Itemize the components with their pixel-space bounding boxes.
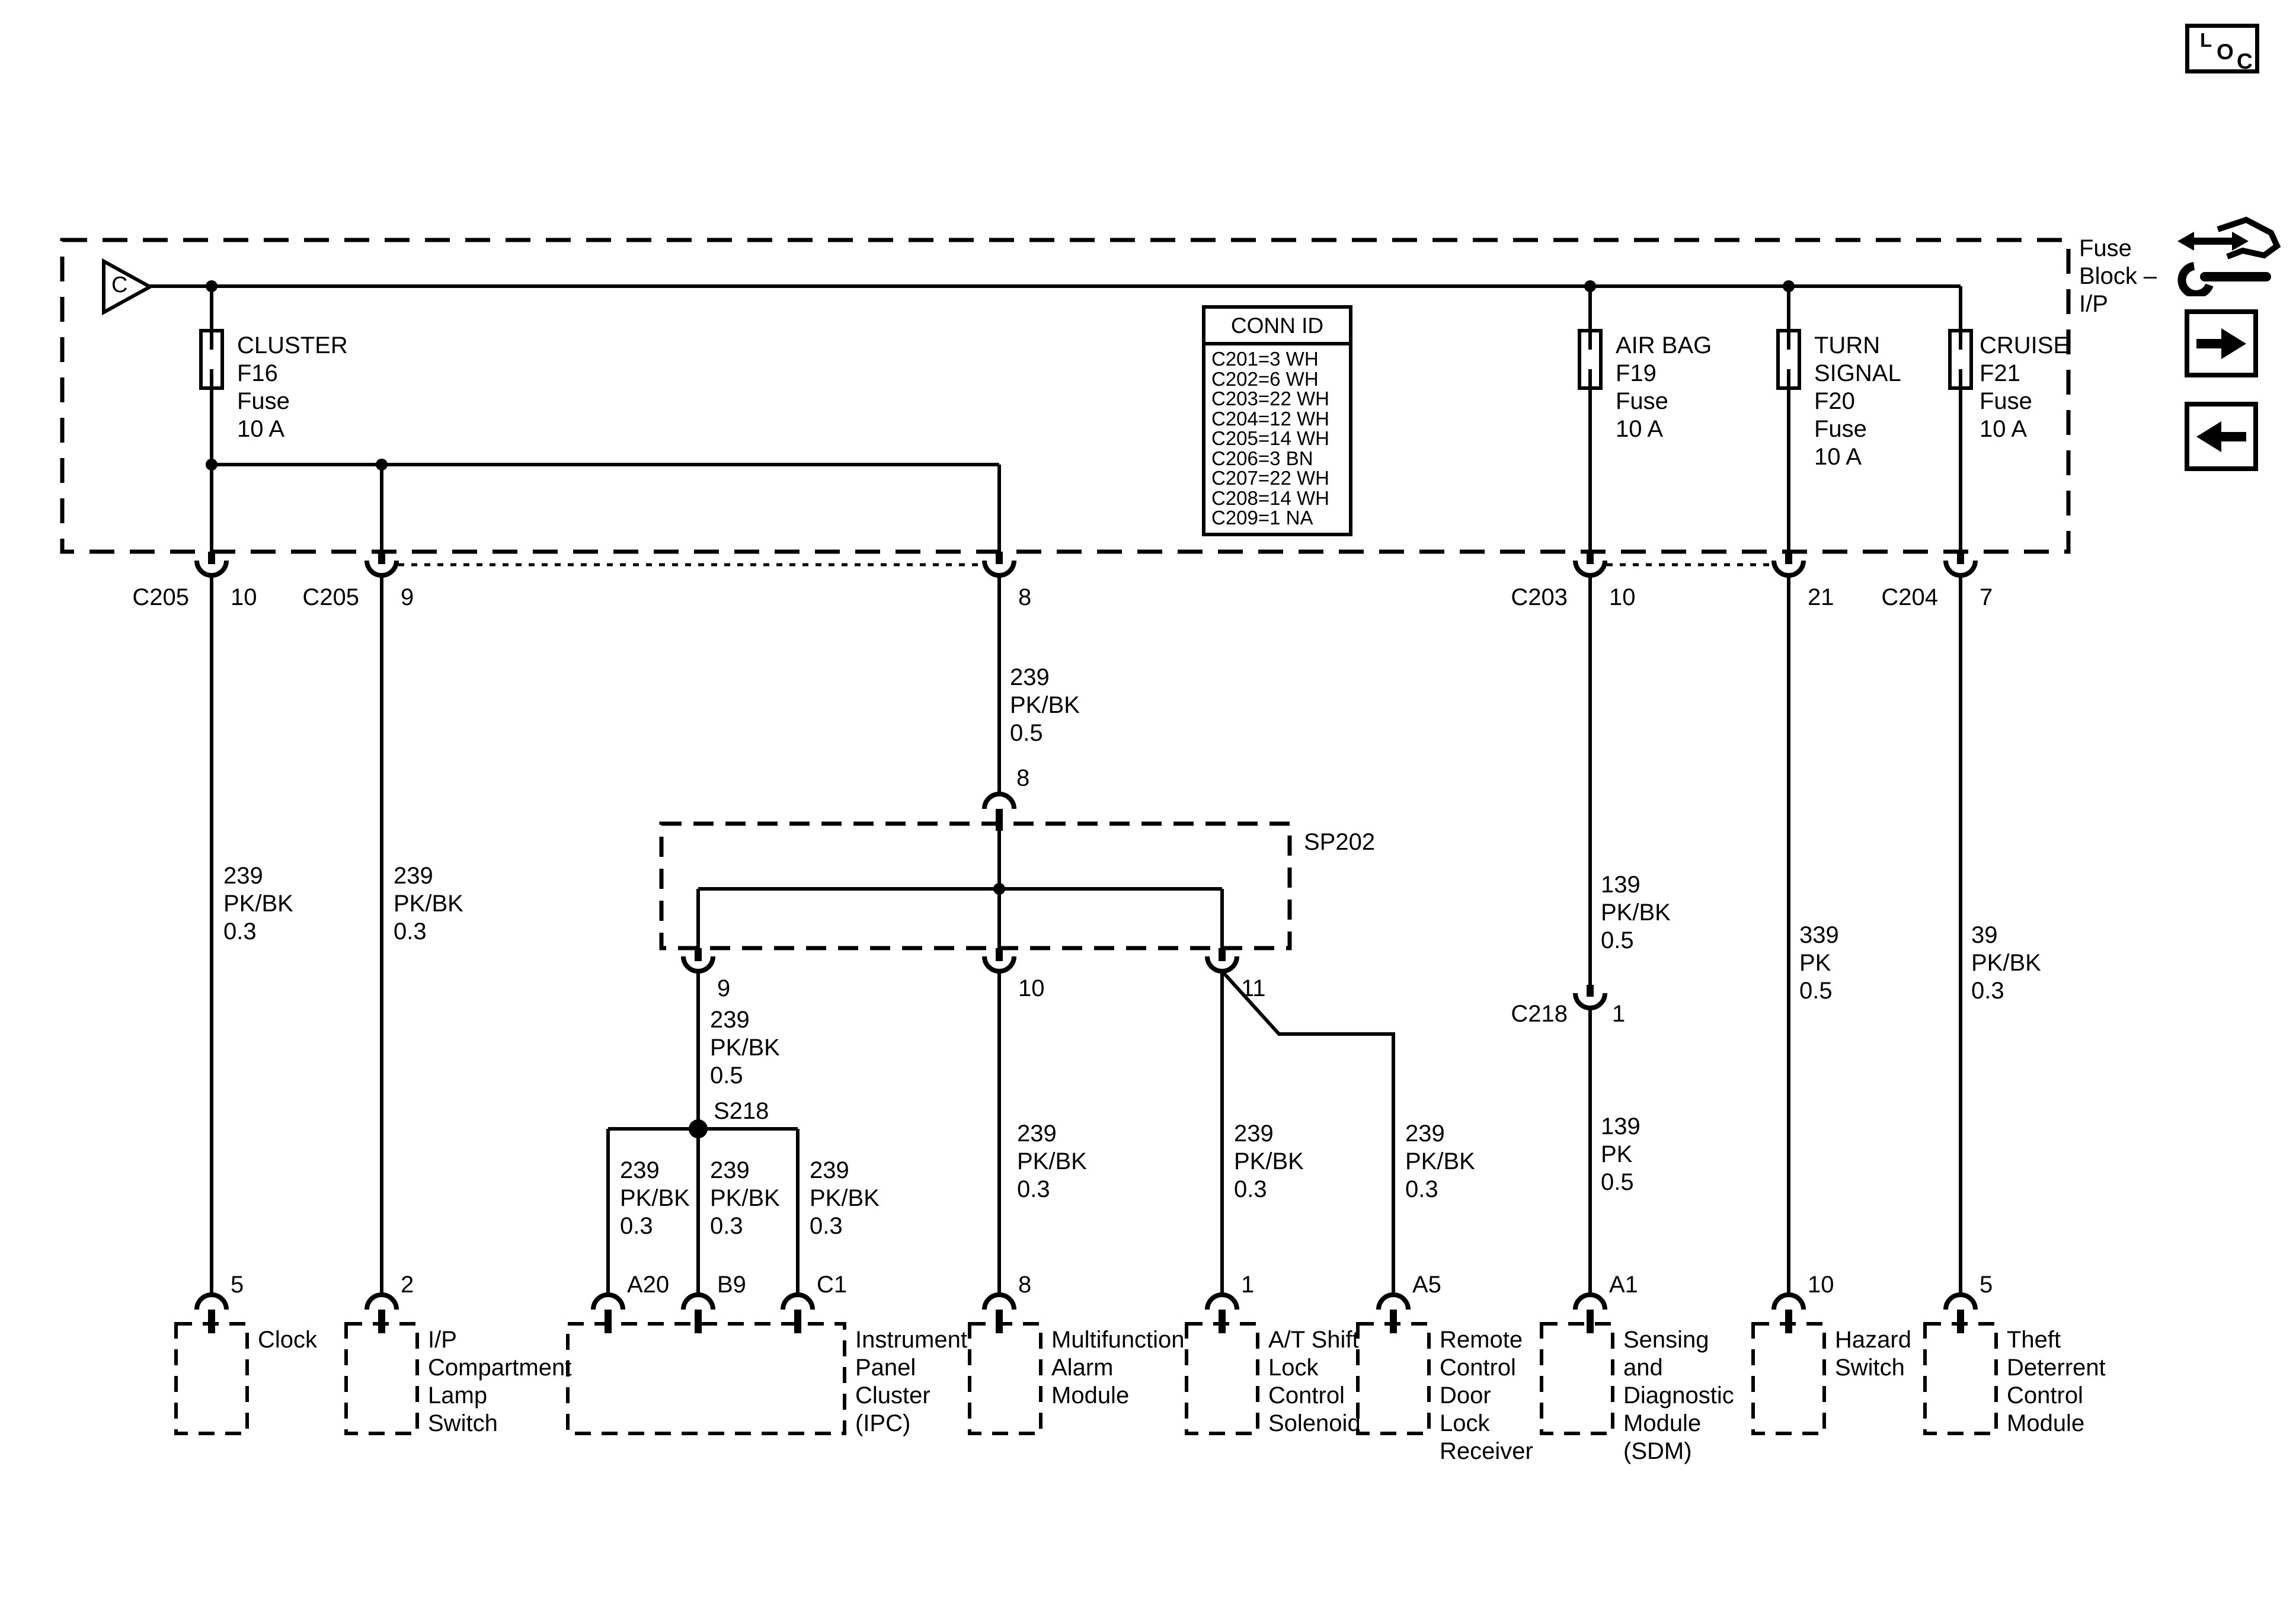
wire-label-multifunction: 239 PK/BK 0.3 bbox=[1017, 1120, 1087, 1204]
wiring-diagram-page: C Fuse Block – I/P CLUSTER F16 Fuse 10 A… bbox=[0, 0, 2296, 1610]
pin-remote: A5 bbox=[1412, 1271, 1441, 1299]
wire-label-ipc-c1: 239 PK/BK 0.3 bbox=[810, 1157, 880, 1240]
pin-ipc-a20: A20 bbox=[627, 1271, 669, 1299]
loc-letter-l: L bbox=[2200, 29, 2212, 52]
sp202-pin10-label: 10 bbox=[1018, 975, 1045, 1003]
wire-label-at-shift: 239 PK/BK 0.3 bbox=[1234, 1120, 1304, 1204]
sp202-label: SP202 bbox=[1304, 828, 1375, 856]
connector-c204-pin7: 7 bbox=[1980, 584, 1993, 612]
loc-letter-o: O bbox=[2217, 40, 2234, 65]
fuse-block-label: Fuse Block – I/P bbox=[2079, 235, 2157, 318]
connector-c204-name: C204 bbox=[1849, 584, 1938, 612]
module-label-at-shift: A/T Shift Lock Control Solenoid bbox=[1268, 1326, 1361, 1438]
wire-label-theft: 39 PK/BK 0.3 bbox=[1971, 921, 2041, 1005]
next-button[interactable] bbox=[2185, 309, 2258, 377]
s218-label: S218 bbox=[714, 1097, 769, 1125]
wire-label-ipc-a20: 239 PK/BK 0.3 bbox=[620, 1157, 690, 1240]
module-label-multifunction: Multifunction Alarm Module bbox=[1051, 1326, 1185, 1410]
connector-pin8-out: 8 bbox=[1018, 584, 1031, 612]
s218-splice-dot bbox=[689, 1119, 708, 1138]
connector-c205-name: C205 bbox=[270, 584, 359, 612]
loc-button[interactable]: L O C bbox=[2185, 24, 2259, 73]
module-label-ipc: Instrument Panel Cluster (IPC) bbox=[855, 1326, 967, 1438]
pin-theft: 5 bbox=[1980, 1271, 1993, 1299]
wire-label-hazard: 339 PK 0.5 bbox=[1799, 921, 1839, 1005]
conn-id-row: C205=14 WH bbox=[1205, 428, 1349, 449]
circuit-ref-letter: C bbox=[111, 271, 127, 299]
connector-symbols bbox=[197, 552, 1975, 1333]
pin-ipc-b9: B9 bbox=[717, 1271, 746, 1299]
hazard-switch-box bbox=[1753, 1324, 1824, 1433]
connector-c205-pin10: 10 bbox=[231, 584, 257, 612]
conn-id-row: C204=12 WH bbox=[1205, 409, 1349, 429]
sp202-pin9-label: 9 bbox=[717, 975, 730, 1003]
connector-c205-pin9: 9 bbox=[401, 584, 414, 612]
module-label-theft: Theft Deterrent Control Module bbox=[2007, 1326, 2106, 1438]
conn-id-row: C209=1 NA bbox=[1205, 508, 1349, 528]
sdm-box bbox=[1542, 1324, 1613, 1433]
fuse-f16 bbox=[201, 331, 222, 388]
pin-ipc-c1: C1 bbox=[817, 1271, 847, 1299]
arrow-left-icon bbox=[2189, 406, 2253, 466]
fuse-f16-label: CLUSTER F16 Fuse 10 A bbox=[237, 332, 348, 443]
arrow-right-icon bbox=[2189, 314, 2253, 373]
conn-id-row: C201=3 WH bbox=[1205, 349, 1349, 369]
connector-c203-pin10: 10 bbox=[1609, 584, 1636, 612]
ip-lamp-switch-box bbox=[346, 1324, 417, 1433]
pin-hazard: 10 bbox=[1808, 1271, 1834, 1299]
fuse-f20-label: TURN SIGNAL F20 Fuse 10 A bbox=[1814, 332, 1901, 471]
pin-clock: 5 bbox=[231, 1271, 244, 1299]
pin-at-shift: 1 bbox=[1241, 1271, 1254, 1299]
conn-id-row: C208=14 WH bbox=[1205, 488, 1349, 508]
pin-multifunction: 8 bbox=[1018, 1271, 1031, 1299]
wire-label-sp202-feed: 239 PK/BK 0.5 bbox=[1010, 664, 1080, 747]
wire-label-ipc-b9: 239 PK/BK 0.3 bbox=[710, 1157, 780, 1240]
fuse-f21-label: CRUISE F21 Fuse 10 A bbox=[1980, 332, 2069, 443]
wire-label-remote: 239 PK/BK 0.3 bbox=[1405, 1120, 1475, 1204]
pin-sdm: A1 bbox=[1609, 1271, 1638, 1299]
conn-id-table: CONN ID C201=3 WH C202=6 WH C203=22 WH C… bbox=[1202, 305, 1352, 536]
conn-id-header: CONN ID bbox=[1205, 309, 1349, 345]
module-label-hazard: Hazard Switch bbox=[1835, 1326, 1911, 1382]
module-label-remote: Remote Control Door Lock Receiver bbox=[1440, 1326, 1533, 1465]
wire-label-clock: 239 PK/BK 0.3 bbox=[223, 862, 293, 946]
module-label-clock: Clock bbox=[258, 1326, 317, 1354]
pin-ip-lamp: 2 bbox=[401, 1271, 414, 1299]
fuse-f19 bbox=[1579, 331, 1601, 388]
at-shift-lock-box bbox=[1187, 1324, 1258, 1433]
clock-box bbox=[176, 1324, 247, 1433]
conn-id-row: C202=6 WH bbox=[1205, 369, 1349, 389]
module-label-sdm: Sensing and Diagnostic Module (SDM) bbox=[1623, 1326, 1734, 1465]
multifunction-alarm-box bbox=[970, 1324, 1041, 1433]
ipc-box bbox=[568, 1324, 845, 1433]
sp202-splice-pack-outline bbox=[661, 824, 1290, 948]
conn-id-row: C206=3 BN bbox=[1205, 449, 1349, 469]
connector-pin8-in: 8 bbox=[1016, 764, 1029, 792]
conn-id-row: C203=22 WH bbox=[1205, 389, 1349, 409]
module-label-ip-lamp: I/P Compartment Lamp Switch bbox=[428, 1326, 571, 1438]
fuse-f20 bbox=[1778, 331, 1799, 388]
connector-c218-pin: 1 bbox=[1612, 1000, 1625, 1028]
fuse-f19-label: AIR BAG F19 Fuse 10 A bbox=[1616, 332, 1712, 443]
conn-id-row: C207=22 WH bbox=[1205, 468, 1349, 488]
theft-deterrent-box bbox=[1925, 1324, 1996, 1433]
connector-pin21: 21 bbox=[1808, 584, 1834, 612]
fuse-f21 bbox=[1950, 331, 1971, 388]
remote-door-lock-box bbox=[1358, 1324, 1429, 1433]
connector-c205-name: C205 bbox=[100, 584, 189, 612]
wire-label-ip-lamp: 239 PK/BK 0.3 bbox=[394, 862, 463, 946]
connector-c218-name: C218 bbox=[1479, 1000, 1568, 1028]
loc-letter-c: C bbox=[2237, 49, 2253, 74]
wire-label-sdm-upper: 139 PK/BK 0.5 bbox=[1601, 871, 1671, 955]
wire-label-s218-feed: 239 PK/BK 0.5 bbox=[710, 1006, 780, 1090]
sp202-pin11-label: 11 bbox=[1241, 975, 1266, 1003]
wiring-repair-icon[interactable] bbox=[2176, 216, 2283, 296]
connector-c203-name: C203 bbox=[1479, 584, 1568, 612]
back-button[interactable] bbox=[2185, 402, 2258, 471]
wire-label-sdm-lower: 139 PK 0.5 bbox=[1601, 1113, 1641, 1196]
